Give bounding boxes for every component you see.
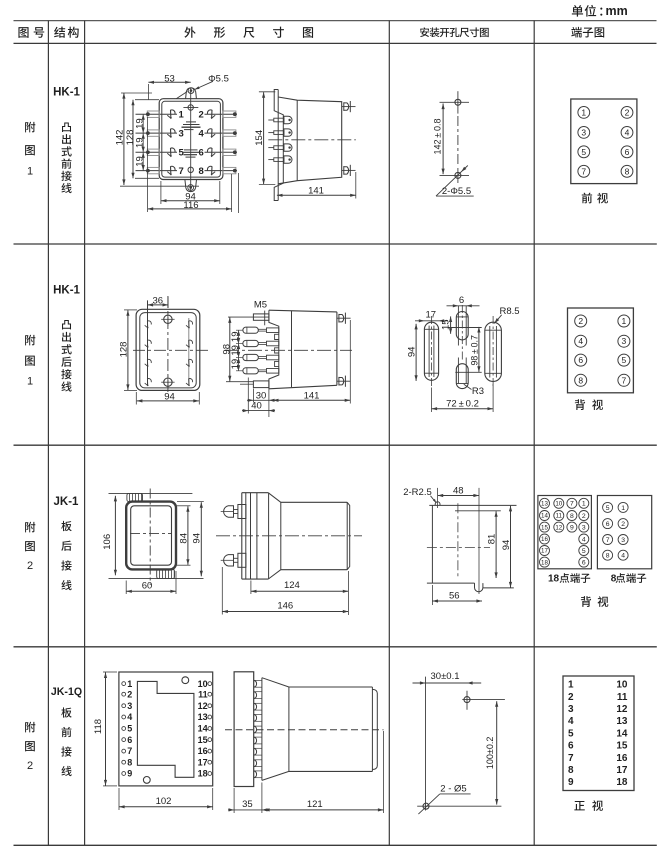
svg-text:4: 4	[625, 127, 630, 137]
svg-text:121: 121	[307, 799, 323, 810]
svg-text:7: 7	[581, 166, 586, 176]
svg-text:17: 17	[426, 310, 437, 321]
svg-text:1: 1	[622, 316, 627, 326]
svg-text:100±0.2: 100±0.2	[485, 737, 495, 769]
svg-text:16: 16	[198, 746, 208, 756]
svg-text:5: 5	[606, 505, 610, 512]
svg-text:15: 15	[198, 735, 208, 745]
svg-text:13: 13	[616, 716, 628, 727]
svg-text:2 - Ø5: 2 - Ø5	[440, 784, 466, 795]
svg-text:1: 1	[179, 110, 185, 121]
svg-text:7: 7	[127, 746, 132, 756]
svg-text:16: 16	[541, 536, 548, 543]
svg-text:4: 4	[582, 536, 586, 543]
svg-text:30±0.1: 30±0.1	[431, 671, 460, 682]
svg-text:2: 2	[568, 692, 574, 703]
svg-text:7: 7	[179, 166, 184, 177]
svg-text:3: 3	[622, 336, 627, 346]
svg-text:17: 17	[616, 765, 628, 776]
svg-text:18: 18	[616, 777, 628, 788]
svg-text:2: 2	[199, 110, 204, 121]
svg-text:94: 94	[192, 533, 203, 544]
svg-text:56: 56	[449, 591, 460, 602]
svg-text:60: 60	[142, 581, 153, 592]
svg-text:2: 2	[27, 560, 33, 572]
svg-text:14: 14	[616, 728, 628, 739]
svg-text:3: 3	[581, 127, 586, 137]
svg-text:53: 53	[164, 74, 175, 85]
svg-text:154: 154	[254, 130, 265, 146]
svg-text:4: 4	[568, 716, 574, 727]
svg-text:10: 10	[616, 680, 628, 691]
svg-text:6: 6	[625, 147, 630, 157]
svg-text:8: 8	[606, 553, 610, 560]
svg-text:6: 6	[578, 355, 583, 365]
svg-text:4: 4	[127, 712, 132, 722]
svg-text:JK-1: JK-1	[54, 496, 80, 508]
svg-text:16: 16	[616, 753, 628, 764]
svg-text:10: 10	[198, 679, 208, 689]
svg-text:6: 6	[606, 521, 610, 528]
svg-text:128: 128	[119, 342, 130, 358]
svg-text:6: 6	[568, 741, 574, 752]
svg-text:3: 3	[127, 701, 132, 711]
svg-text:8: 8	[570, 513, 574, 520]
svg-text:11: 11	[617, 692, 628, 703]
svg-text:8: 8	[127, 757, 132, 767]
svg-text:4: 4	[621, 553, 625, 560]
svg-text:2: 2	[578, 316, 583, 326]
svg-text:5: 5	[622, 355, 627, 365]
svg-text:11: 11	[198, 689, 208, 699]
svg-text:9: 9	[568, 777, 574, 788]
svg-text:15: 15	[541, 524, 548, 531]
svg-text:12: 12	[555, 524, 562, 531]
svg-text:5: 5	[127, 724, 132, 734]
svg-text:2: 2	[625, 107, 630, 117]
svg-text:142: 142	[115, 130, 126, 146]
svg-text:R8.5: R8.5	[499, 306, 519, 317]
svg-text:3: 3	[568, 704, 574, 715]
svg-text:1: 1	[27, 165, 33, 177]
svg-text:mm: mm	[606, 4, 628, 18]
svg-text:2: 2	[621, 521, 625, 528]
svg-text:18: 18	[548, 574, 560, 585]
svg-text:8: 8	[199, 166, 204, 177]
svg-text:48: 48	[453, 486, 464, 497]
svg-text:35: 35	[242, 799, 253, 810]
svg-text:142 ± 0.8: 142 ± 0.8	[432, 118, 442, 154]
svg-text:72 ± 0.2: 72 ± 0.2	[446, 398, 479, 409]
svg-text:19: 19	[230, 359, 241, 370]
svg-text:12: 12	[616, 704, 628, 715]
svg-text:14: 14	[198, 724, 208, 734]
svg-text:M5: M5	[254, 299, 267, 310]
svg-text:3: 3	[179, 128, 184, 139]
svg-text:5: 5	[179, 148, 185, 159]
svg-text:40: 40	[251, 401, 262, 412]
svg-text:5: 5	[581, 147, 586, 157]
svg-text:19: 19	[135, 156, 146, 167]
svg-text:HK-1: HK-1	[53, 87, 80, 99]
svg-text:HK-1: HK-1	[53, 285, 80, 297]
svg-text:98 ± 0.7: 98 ± 0.7	[469, 335, 479, 365]
svg-text:6: 6	[127, 735, 132, 745]
svg-text:1: 1	[568, 680, 574, 691]
svg-text:9: 9	[127, 769, 132, 779]
svg-text:8: 8	[578, 375, 583, 385]
svg-text:146: 146	[277, 600, 293, 611]
svg-text:6: 6	[582, 560, 586, 567]
svg-text:14: 14	[541, 513, 548, 520]
svg-text:116: 116	[183, 200, 198, 211]
svg-text:3: 3	[582, 525, 586, 532]
svg-text:118: 118	[93, 719, 104, 734]
svg-text:36: 36	[153, 296, 164, 307]
svg-text:94: 94	[407, 347, 418, 358]
svg-text:2: 2	[582, 513, 586, 520]
svg-text:2-Φ5.5: 2-Φ5.5	[442, 186, 471, 197]
svg-text:18: 18	[198, 769, 208, 779]
svg-text:8: 8	[611, 574, 617, 585]
svg-text:13: 13	[541, 501, 548, 508]
svg-text:81: 81	[487, 534, 498, 545]
svg-text:7: 7	[606, 537, 610, 544]
svg-text:10: 10	[555, 501, 562, 508]
svg-text:13: 13	[198, 712, 208, 722]
svg-text:7: 7	[570, 501, 574, 508]
svg-text:2: 2	[127, 689, 132, 699]
svg-text:17: 17	[541, 548, 548, 555]
svg-text:15: 15	[616, 741, 628, 752]
svg-text:6: 6	[199, 148, 204, 159]
svg-text:8: 8	[625, 166, 630, 176]
svg-text:1: 1	[127, 679, 132, 689]
svg-text:5: 5	[568, 728, 574, 739]
svg-text:19: 19	[230, 345, 241, 356]
svg-text:4: 4	[578, 336, 583, 346]
svg-text:1: 1	[582, 501, 586, 508]
svg-text:18: 18	[541, 559, 548, 566]
svg-text:19: 19	[135, 137, 146, 148]
svg-text:R3: R3	[472, 386, 484, 397]
svg-text:11: 11	[556, 513, 563, 520]
svg-text:94: 94	[501, 540, 512, 551]
svg-text:7: 7	[568, 753, 574, 764]
svg-text:94: 94	[164, 392, 175, 403]
svg-text:4: 4	[199, 128, 205, 139]
svg-text:7: 7	[622, 375, 627, 385]
svg-text:2: 2	[27, 760, 33, 772]
svg-text:124: 124	[284, 580, 300, 591]
svg-text:5: 5	[582, 548, 586, 555]
svg-text:17: 17	[198, 757, 208, 767]
svg-text:141: 141	[308, 186, 324, 197]
svg-text:Φ5.5: Φ5.5	[208, 74, 229, 85]
svg-text:3: 3	[621, 537, 625, 544]
svg-text:19: 19	[135, 118, 146, 129]
svg-text:141: 141	[304, 391, 320, 402]
svg-text:2-R2.5: 2-R2.5	[403, 487, 432, 498]
svg-text:19: 19	[230, 332, 241, 343]
svg-text:1: 1	[581, 107, 586, 117]
svg-text:106: 106	[102, 534, 113, 550]
svg-text:1: 1	[621, 505, 625, 512]
svg-text:102: 102	[156, 796, 172, 807]
svg-text:1: 1	[27, 375, 33, 387]
svg-text:15: 15	[441, 319, 452, 330]
svg-text:6: 6	[459, 295, 464, 306]
svg-text:84: 84	[178, 533, 189, 544]
svg-text:JK-1Q: JK-1Q	[51, 686, 82, 698]
svg-text:8: 8	[568, 765, 574, 776]
svg-text:12: 12	[198, 701, 208, 711]
svg-text:9: 9	[570, 525, 574, 532]
